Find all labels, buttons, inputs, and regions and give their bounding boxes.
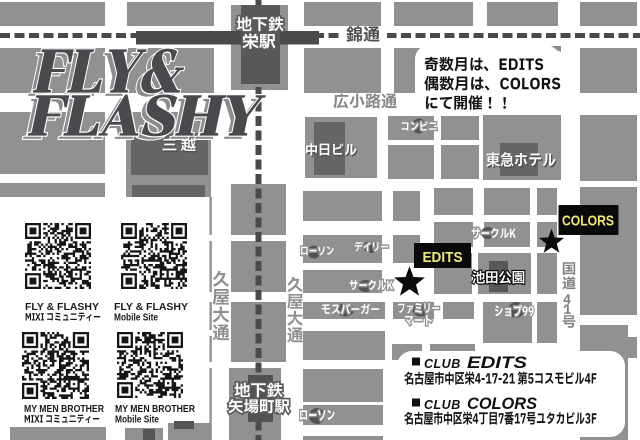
svg-text:EDITS: EDITS (423, 250, 463, 266)
svg-text:EDITS: EDITS (467, 353, 528, 372)
svg-text:Mobile Site: Mobile Site (115, 415, 159, 426)
svg-text:COLORS: COLORS (467, 394, 538, 413)
svg-text:CLUB: CLUB (424, 398, 461, 412)
svg-text:MY MEN BROTHER: MY MEN BROTHER (115, 404, 196, 415)
svg-text:FLY & FLASHY: FLY & FLASHY (114, 302, 188, 313)
svg-text:FLY & FLASHY: FLY & FLASHY (25, 302, 99, 313)
svg-text:Mobile Site: Mobile Site (114, 313, 158, 324)
svg-text:MY MEN BROTHER: MY MEN BROTHER (24, 404, 105, 415)
svg-text:CLUB: CLUB (424, 357, 461, 371)
svg-text:COLORS: COLORS (562, 213, 614, 230)
